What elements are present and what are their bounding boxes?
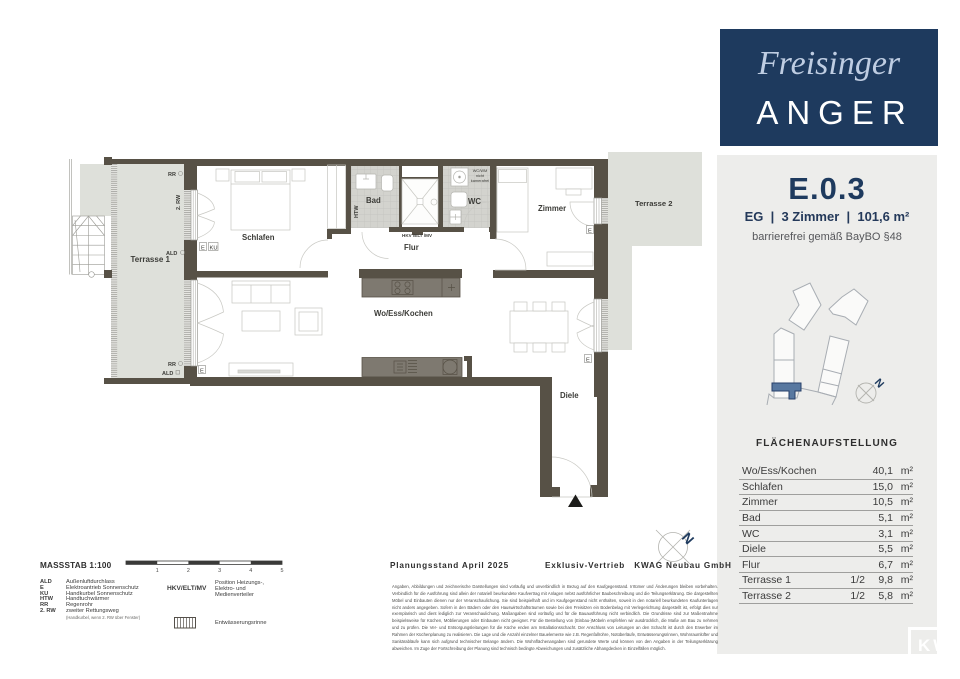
svg-text:E: E [200,369,204,375]
svg-text:Diele: Diele [560,391,579,400]
svg-text:Schlafen: Schlafen [242,233,275,242]
svg-text:Terrasse 2: Terrasse 2 [635,199,672,208]
svg-text:Wo/Ess/Kochen: Wo/Ess/Kochen [374,309,433,318]
svg-text:E: E [201,246,205,252]
svg-text:KU: KU [210,246,218,252]
svg-text:E: E [586,358,590,364]
svg-text:ALD: ALD [166,251,177,257]
svg-text:4: 4 [249,568,252,574]
svg-text:HKV /ELT /MV: HKV /ELT /MV [402,233,433,238]
svg-text:1: 1 [156,568,159,574]
svg-text:RR: RR [168,172,176,178]
svg-text:Bad: Bad [366,196,381,205]
svg-text:N: N [679,529,698,547]
svg-text:3: 3 [218,568,221,574]
svg-text:WC: WC [468,197,481,206]
svg-text:kamerafrei: kamerafrei [471,178,490,183]
svg-text:2. RW: 2. RW [176,194,182,210]
svg-text:N: N [872,377,886,391]
svg-text:E: E [588,229,592,235]
svg-text:RR: RR [168,362,176,368]
svg-text:ALD: ALD [162,371,173,377]
svg-text:Flur: Flur [404,243,419,252]
svg-text:Zimmer: Zimmer [538,204,566,213]
svg-text:5: 5 [281,568,284,574]
svg-text:HTW: HTW [354,205,360,218]
svg-text:Terrasse 1: Terrasse 1 [131,255,171,264]
svg-text:2: 2 [187,568,190,574]
